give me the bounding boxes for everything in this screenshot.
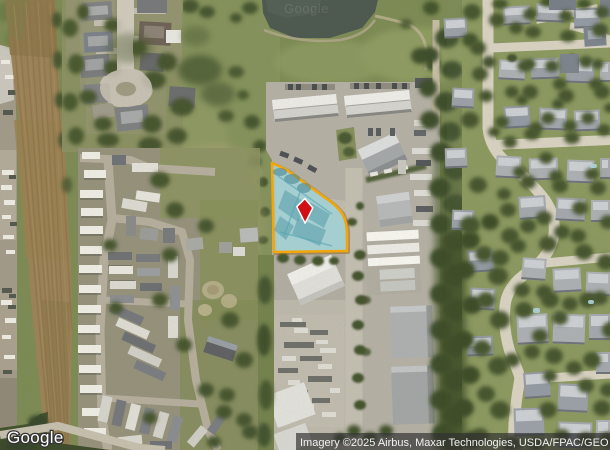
svg-text:Imagery ©2025 Airbus, Maxar Te: Imagery ©2025 Airbus, Maxar Technologies… [300,437,609,449]
svg-text:Google: Google [7,428,64,447]
svg-text:Google: Google [284,1,329,16]
